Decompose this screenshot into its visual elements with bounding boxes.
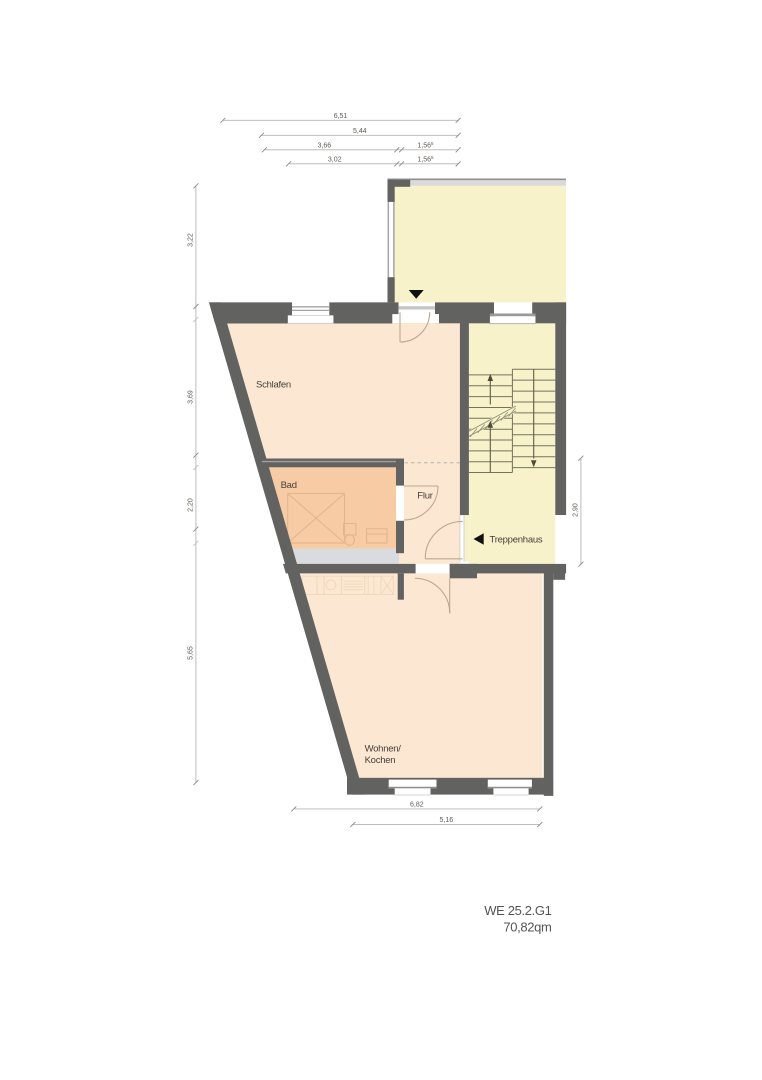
svg-text:Wohnen/: Wohnen/ — [365, 744, 402, 755]
svg-text:70,82qm: 70,82qm — [503, 920, 551, 935]
svg-text:Treppenhaus: Treppenhaus — [490, 535, 543, 546]
svg-text:WE 25.2.G1: WE 25.2.G1 — [484, 903, 551, 918]
svg-text:Schlafen: Schlafen — [256, 380, 291, 391]
svg-text:6,82: 6,82 — [410, 802, 424, 809]
svg-text:6,51: 6,51 — [334, 113, 348, 120]
svg-text:3,22: 3,22 — [188, 233, 195, 247]
svg-text:5,44: 5,44 — [353, 128, 367, 135]
svg-text:Bad: Bad — [281, 480, 297, 491]
svg-text:5,16: 5,16 — [439, 817, 453, 824]
svg-text:5,65: 5,65 — [188, 646, 195, 660]
svg-text:2,90: 2,90 — [573, 503, 580, 517]
svg-text:Flur: Flur — [417, 491, 432, 502]
svg-text:3,02: 3,02 — [328, 157, 342, 164]
svg-text:Kochen: Kochen — [365, 755, 396, 766]
svg-text:3,66: 3,66 — [318, 143, 332, 150]
svg-text:2,20: 2,20 — [188, 498, 195, 512]
svg-text:3,69: 3,69 — [188, 390, 195, 404]
